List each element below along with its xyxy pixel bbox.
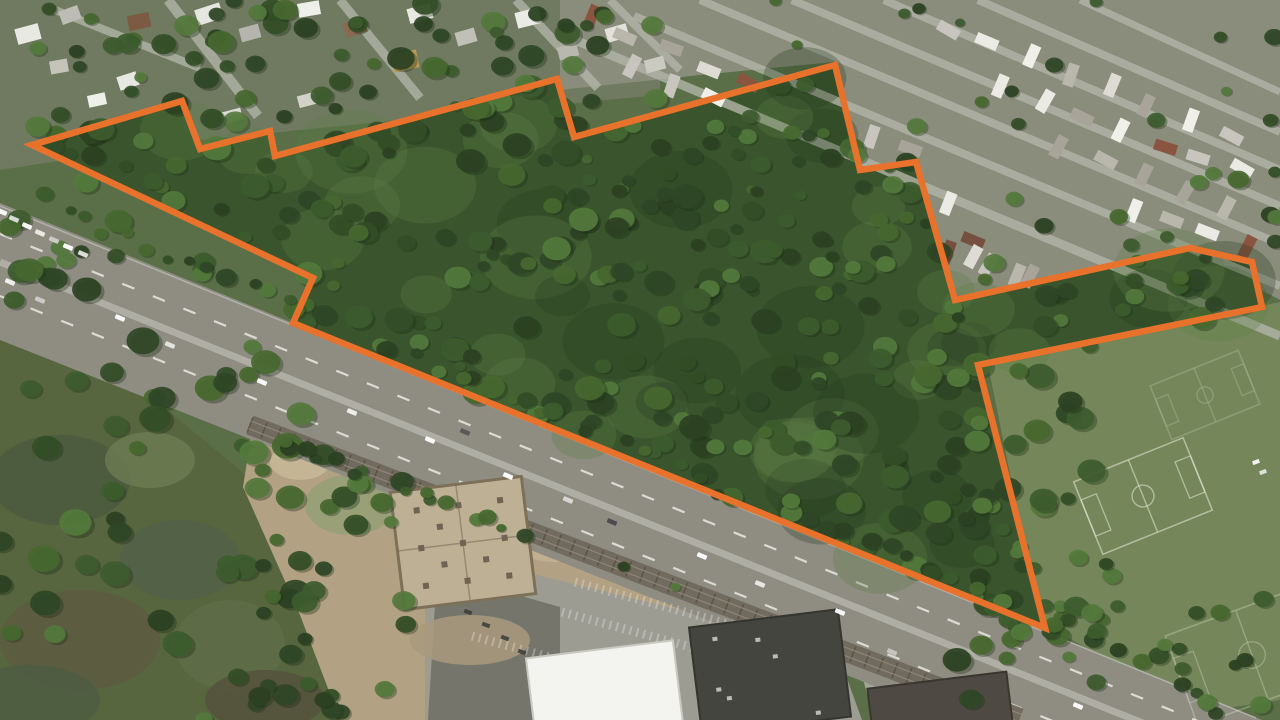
dark-roof-building [689, 609, 851, 720]
building-foundation [390, 476, 535, 609]
foundation-outline [390, 476, 535, 609]
satellite-map [0, 0, 1280, 720]
aerial-imagery [0, 0, 1280, 720]
